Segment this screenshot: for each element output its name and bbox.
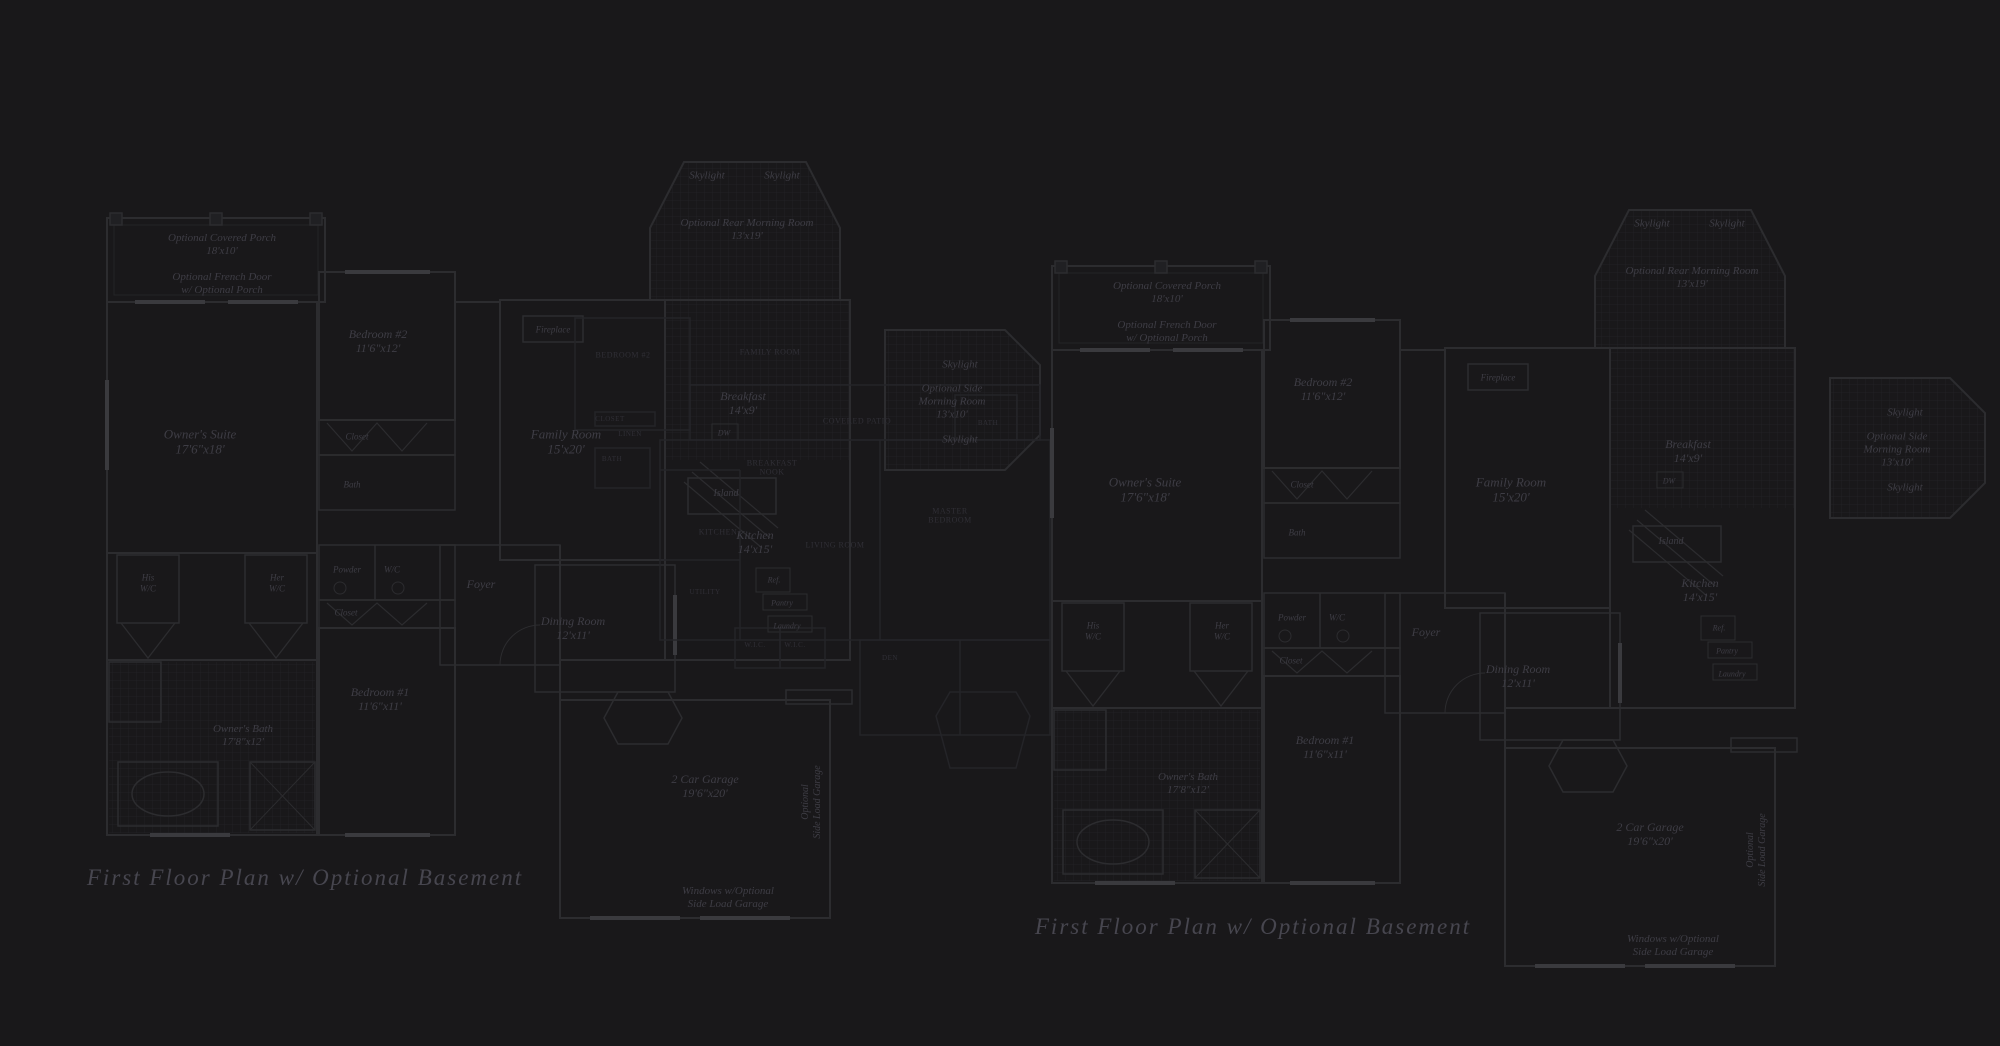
left-plan-walls [107,162,1040,918]
plan-title: First Floor Plan w/ Optional Basement [87,865,523,891]
blueprint-canvas: Optional Covered Porch18'x10'Optional Fr… [0,0,2000,1046]
plan-title: First Floor Plan w/ Optional Basement [1035,914,1471,940]
right-plan-walls [1052,210,1985,966]
